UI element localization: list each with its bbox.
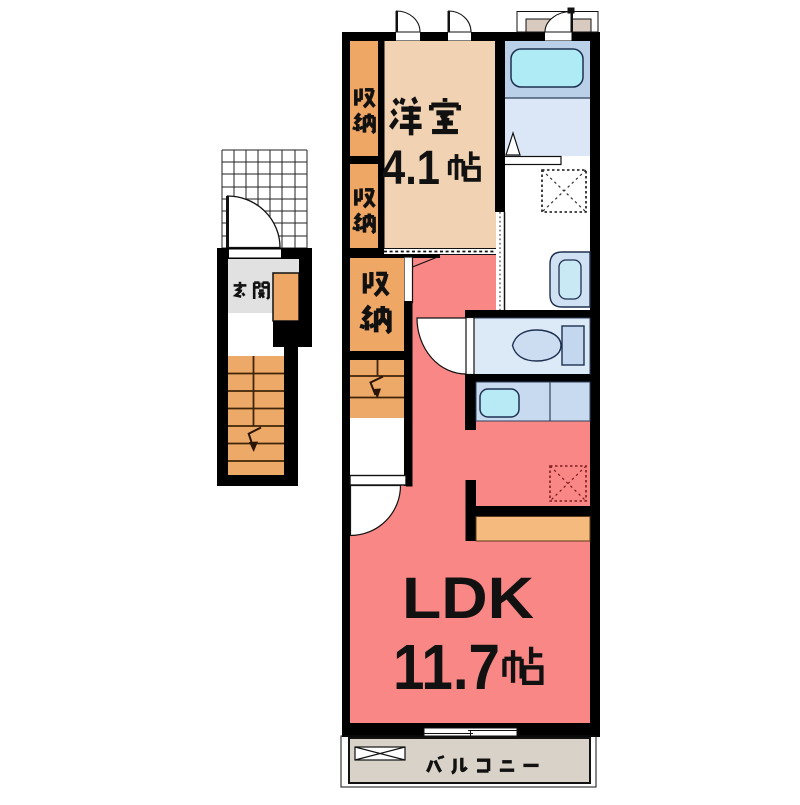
svg-text:4.1: 4.1 xyxy=(382,142,440,195)
svg-text:LDK: LDK xyxy=(402,566,534,631)
svg-text:11.7: 11.7 xyxy=(393,631,500,703)
